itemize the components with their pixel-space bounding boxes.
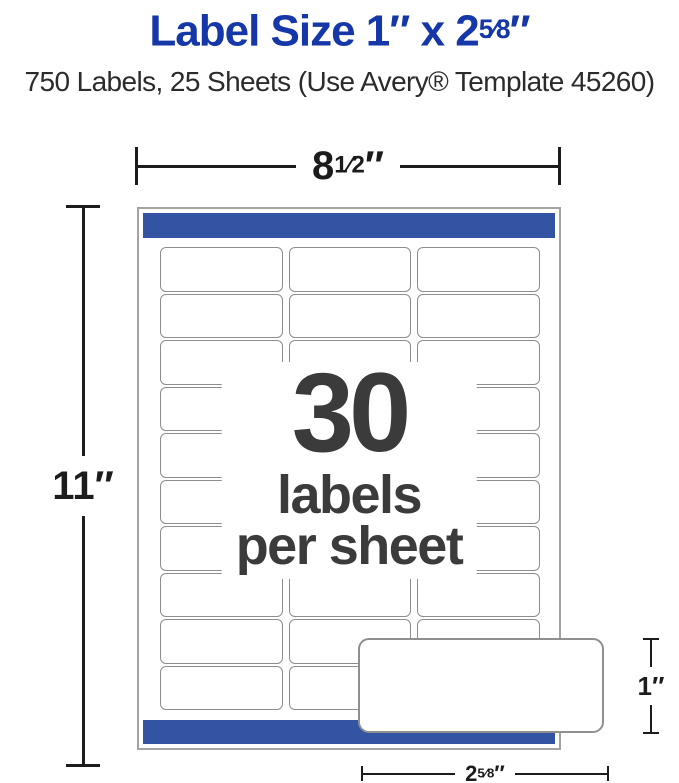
- label-cell: [160, 247, 283, 292]
- sheet-width-fraction: 1⁄2: [334, 151, 365, 178]
- dimension-line: [82, 516, 85, 764]
- dimension-end-cap: [66, 764, 100, 767]
- dimension-line: [363, 773, 455, 775]
- sheet-width-inch-mark: ″: [365, 144, 384, 188]
- label-width-fraction: 5⁄8: [477, 765, 494, 780]
- labels-caption-line2: per sheet: [236, 520, 463, 573]
- sheet-height-label: 11″: [52, 456, 113, 516]
- title-fraction: 5⁄8: [479, 14, 510, 44]
- product-diagram: Label Size 1″ x 25⁄8″ 750 Labels, 25 She…: [0, 0, 679, 783]
- label-cell: [417, 247, 540, 292]
- sheet-width-label: 81⁄2″: [296, 146, 400, 186]
- page-subtitle: 750 Labels, 25 Sheets (Use Avery® Templa…: [0, 62, 679, 102]
- title-text: Label Size 1″ x 2: [149, 6, 478, 55]
- label-width-dimension: 25⁄8″: [361, 766, 609, 781]
- labels-per-sheet-callout: 30 labels per sheet: [222, 362, 477, 579]
- label-cell: [289, 294, 412, 339]
- label-cell: [417, 573, 540, 618]
- dimension-line: [650, 705, 652, 732]
- sheet-top-blue-band: [143, 213, 555, 238]
- dimension-line: [400, 165, 558, 168]
- single-label-zoom: [358, 638, 604, 733]
- label-cell: [417, 294, 540, 339]
- label-cell: [160, 619, 283, 664]
- label-cell: [289, 247, 412, 292]
- labels-caption-line1: labels: [236, 471, 463, 521]
- page-title: Label Size 1″ x 25⁄8″: [0, 0, 679, 60]
- label-width-number: 2: [465, 761, 477, 783]
- dimension-line: [515, 773, 607, 775]
- labels-count: 30: [236, 364, 463, 463]
- dimension-line: [138, 165, 296, 168]
- label-cell: [160, 666, 283, 711]
- label-height-label: 1″: [638, 667, 665, 705]
- dimension-line: [82, 208, 85, 456]
- dimension-end-cap: [643, 732, 659, 734]
- sheet-width-dimension: 81⁄2″: [135, 147, 561, 185]
- title-inch-mark: ″: [510, 6, 530, 55]
- label-cell: [160, 294, 283, 339]
- dimension-end-tick: [607, 766, 609, 781]
- label-width-label: 25⁄8″: [455, 763, 515, 783]
- label-cell: [160, 573, 283, 618]
- sheet-height-dimension: 11″: [55, 205, 111, 767]
- label-width-inch-mark: ″: [494, 761, 505, 783]
- dimension-end-tick: [558, 147, 561, 185]
- label-cell: [289, 573, 412, 618]
- label-height-dimension: 1″: [633, 638, 669, 734]
- sheet-width-number: 8: [312, 144, 334, 188]
- dimension-line: [650, 640, 652, 667]
